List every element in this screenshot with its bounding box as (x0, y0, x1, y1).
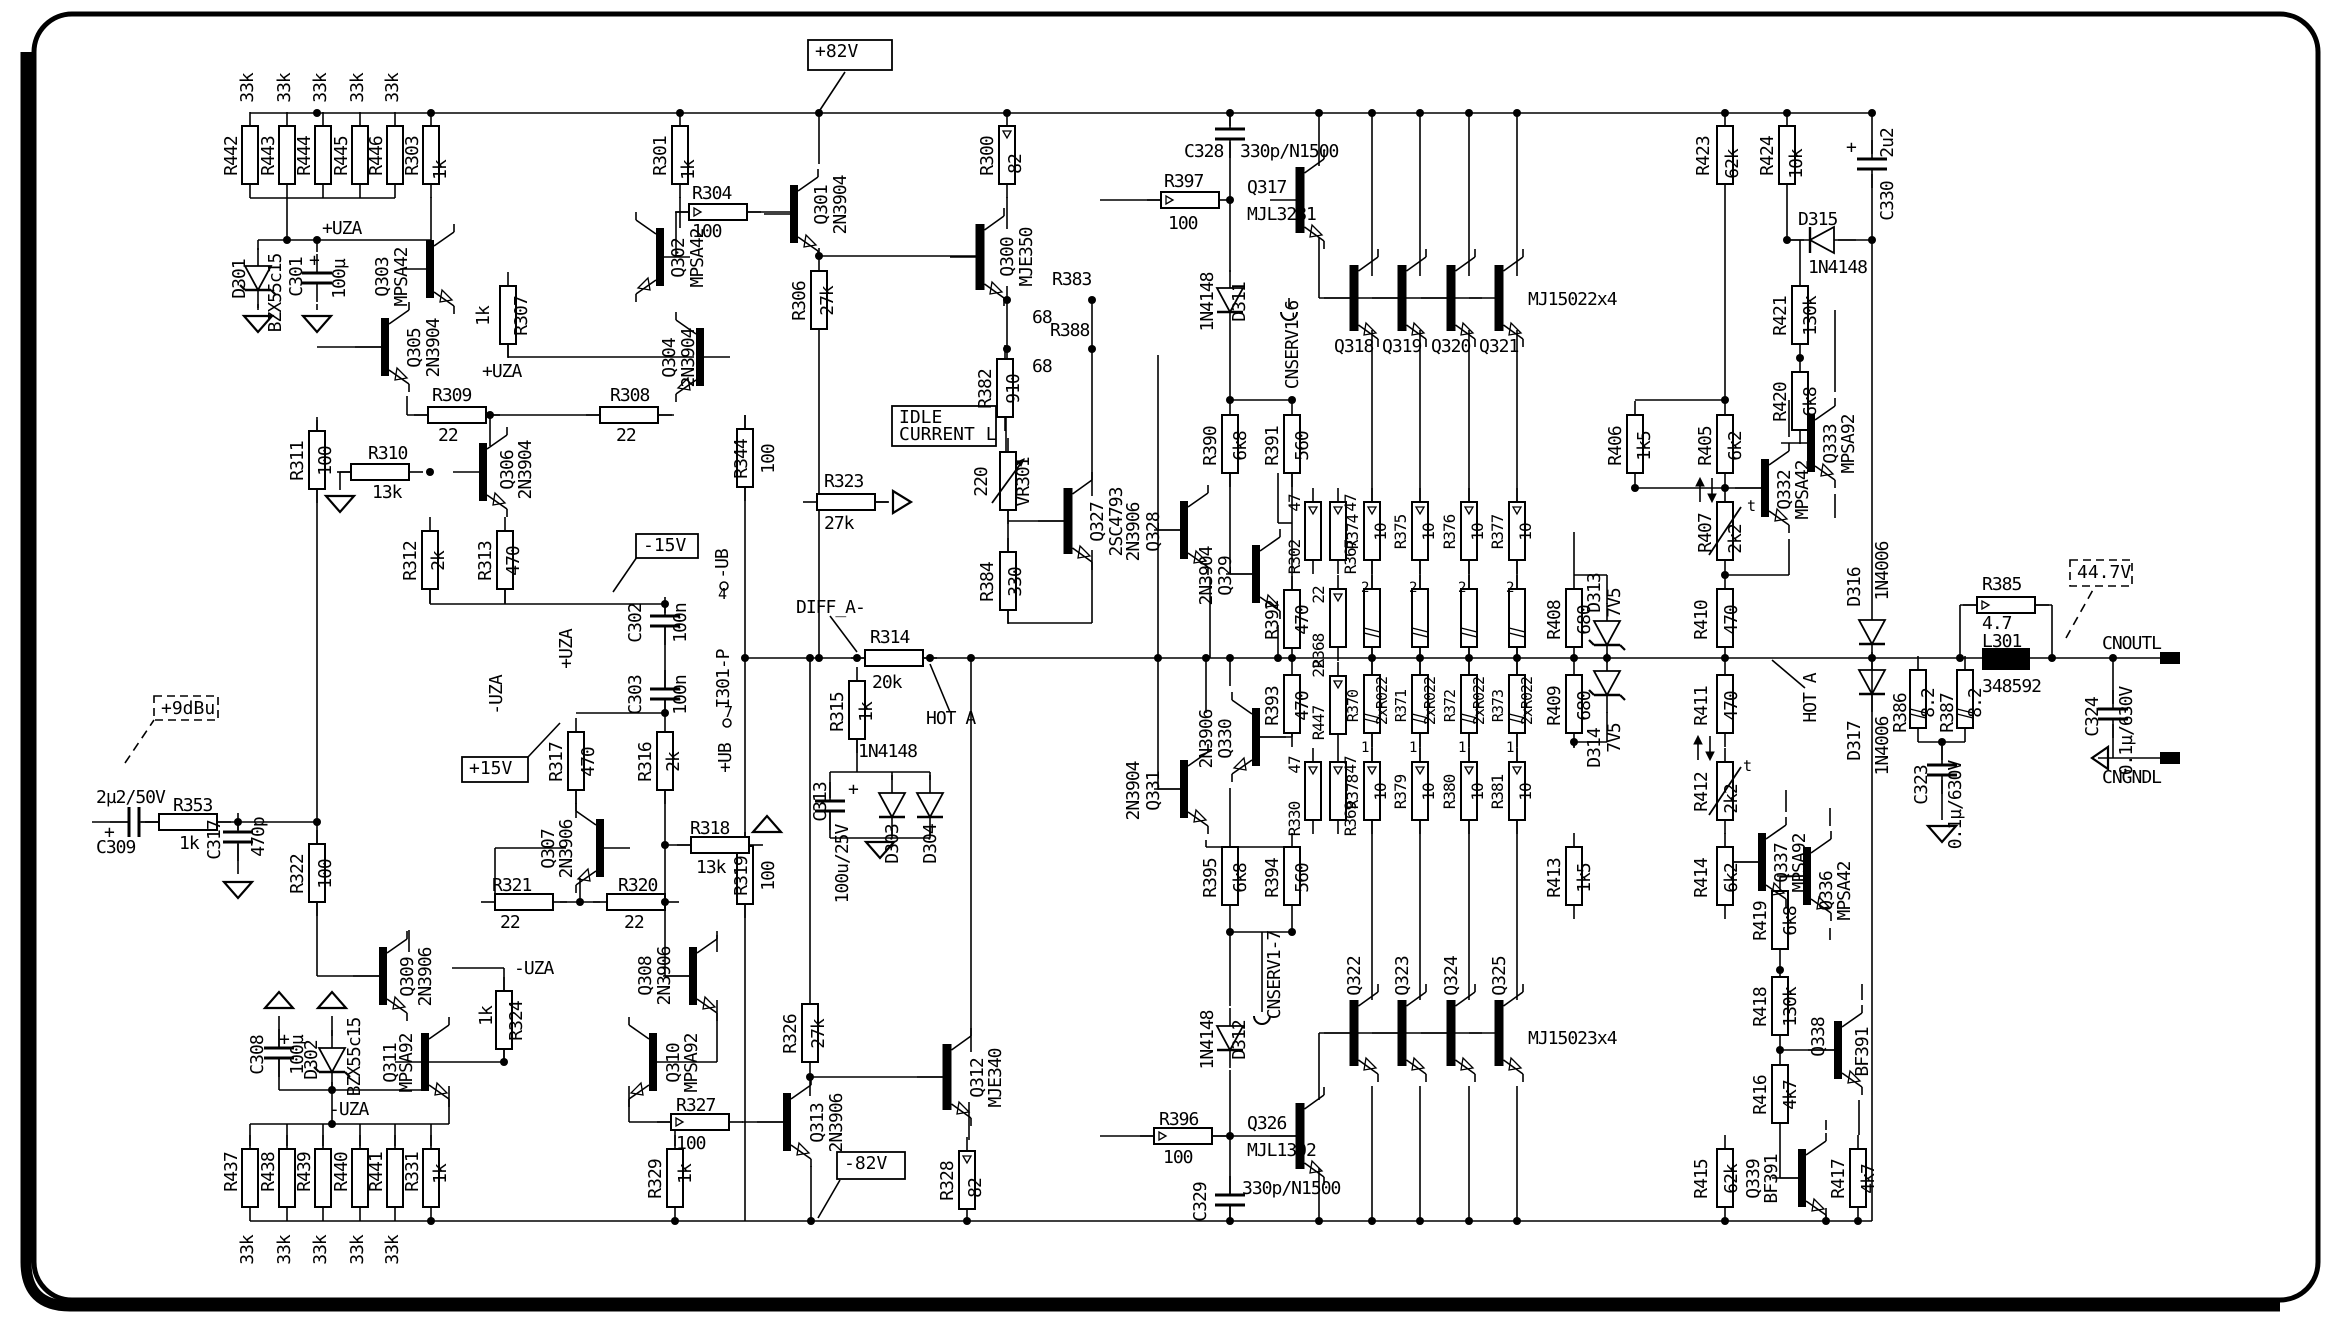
label-1k: 1k (473, 305, 494, 326)
label-mpsa92: MPSA92 (681, 1033, 702, 1092)
label-r374: R374 (1343, 514, 1362, 549)
label-22: 22 (500, 912, 520, 933)
label-100n: 100n (670, 603, 691, 643)
power-label--15V: -15V (636, 534, 698, 558)
label-r302: R302 (1285, 539, 1304, 574)
label-r445: R445 (331, 136, 352, 176)
label-2k: 2k (663, 751, 684, 772)
label-r344: R344 (731, 439, 752, 479)
label-r443: R443 (258, 136, 279, 176)
label-mpsa42: MPSA42 (1834, 861, 1855, 920)
label-100u25v: 100u/25V (832, 823, 853, 903)
label-33k: 33k (274, 1234, 295, 1265)
label-47: 47 (1341, 756, 1360, 774)
label-r300: R300 (977, 136, 998, 176)
label-1k: 1k (430, 159, 451, 180)
label-470: 470 (503, 546, 524, 576)
rvw-40 (1305, 748, 1321, 834)
label-r394: R394 (1262, 858, 1283, 898)
label-r388: R388 (1050, 320, 1090, 341)
svg-text:+9dBu: +9dBu (161, 698, 215, 719)
label-1k5: 1k5 (1634, 431, 1655, 461)
label-100n: 100n (670, 675, 691, 715)
label-2xr022: 2xR022 (1470, 677, 1488, 725)
label-r306: R306 (789, 281, 810, 321)
label-r303: R303 (402, 136, 423, 176)
rv-6 (672, 112, 688, 198)
label-r326: R326 (780, 1014, 801, 1054)
label-130k: 130k (1780, 986, 1801, 1027)
label-q303: Q303 (372, 257, 393, 297)
label-2: 2 (1409, 580, 1417, 596)
label-d313: D313 (1584, 573, 1605, 613)
label-r437: R437 (221, 1152, 242, 1192)
label-560: 560 (1292, 431, 1313, 461)
caph-106 (110, 807, 158, 837)
label-10: 10 (1419, 783, 1438, 801)
label-1: 1 (1361, 740, 1369, 756)
label-62k: 62k (1722, 148, 1743, 179)
label-r313: R313 (475, 541, 496, 581)
power-label--82V: -82V (837, 1152, 905, 1179)
label-2n3906: 2N3906 (654, 946, 675, 1005)
label-1n4148: 1N4148 (1808, 257, 1867, 278)
rhw-83 (675, 204, 761, 220)
label-470: 470 (1292, 605, 1313, 635)
label-d303: D303 (882, 824, 903, 864)
label-mje350: MJE350 (1016, 227, 1037, 286)
label-68: 68 (1032, 356, 1052, 377)
rvw-38 (1330, 575, 1346, 661)
label-r322: R322 (287, 854, 308, 894)
label-r380: R380 (1440, 774, 1459, 809)
label-mjl1302: MJL1302 (1247, 1140, 1316, 1161)
label-q325: Q325 (1489, 956, 1510, 996)
label-1k: 1k (476, 1005, 497, 1026)
label-r324: R324 (506, 1001, 527, 1041)
label-+ub: +UB (715, 743, 736, 773)
label-r321: R321 (492, 875, 532, 896)
label-r412: R412 (1691, 772, 1712, 812)
label-i301-p: I301-P (713, 648, 734, 708)
label-d302: D302 (301, 1040, 322, 1080)
label-d304: D304 (920, 824, 941, 864)
label-2n3904: 2N3904 (1196, 546, 1217, 605)
label-10: 10 (1371, 523, 1390, 541)
label-1k: 1k (430, 1163, 451, 1184)
garr-162 (893, 491, 911, 513)
gnd-156 (224, 882, 252, 898)
label-100: 100 (1163, 1147, 1193, 1168)
arr2-168 (1696, 478, 1716, 502)
label-mpsa42: MPSA42 (391, 247, 412, 306)
rv-1 (279, 112, 295, 198)
label-mpsa42: MPSA42 (1792, 460, 1813, 519)
label-6k2: 6k2 (1721, 863, 1742, 893)
label-2xr022: 2xR022 (1518, 677, 1536, 725)
label-r420: R420 (1770, 382, 1791, 422)
label-r317: R317 (546, 742, 567, 782)
transistor-132 (1038, 472, 1092, 570)
label-c324: C324 (2082, 697, 2103, 737)
rhw-89 (657, 1114, 743, 1130)
label-22: 22 (616, 425, 636, 446)
label-470: 470 (578, 747, 599, 777)
label-910: 910 (1003, 374, 1024, 404)
label-c328: C328 (1184, 141, 1224, 162)
label-r373: R373 (1489, 690, 1507, 722)
label-6k8: 6k8 (1800, 387, 1821, 417)
label-r409: R409 (1544, 686, 1565, 726)
label-r323: R323 (824, 471, 864, 492)
label-6k2: 6k2 (1725, 431, 1746, 461)
label-10: 10 (1419, 523, 1438, 541)
rv-4 (387, 112, 403, 198)
label-q324: Q324 (1441, 956, 1462, 996)
label-q327: Q327 (1087, 502, 1108, 542)
label-q323: Q323 (1392, 956, 1413, 996)
label-r318: R318 (690, 818, 730, 839)
label-+uza: +UZA (556, 628, 577, 669)
label-bzx55c15: BZX55c15 (265, 253, 286, 332)
label-r376: R376 (1440, 514, 1459, 549)
label-q331: Q331 (1143, 771, 1164, 811)
label-348592: 348592 (1982, 676, 2041, 697)
label-hota: HOT A (926, 708, 976, 729)
rv-5 (423, 112, 439, 198)
label-27k: 27k (808, 1018, 829, 1049)
label-r447: R447 (1309, 705, 1328, 740)
label-+: + (309, 250, 320, 271)
rv-21 (315, 1135, 331, 1221)
label-82: 8.2 (1918, 688, 1939, 718)
dioh-117 (1788, 227, 1856, 253)
label-r309: R309 (432, 385, 472, 406)
label-1k: 1k (856, 701, 877, 722)
label-r379: R379 (1391, 774, 1410, 809)
power-label-IDLE: IDLECURRENT L (892, 406, 997, 446)
label-10k: 10k (1786, 148, 1807, 179)
label-82: 82 (965, 1178, 986, 1198)
label-68: 68 (1032, 307, 1052, 328)
label-bzx55c15: BZX55c15 (344, 1017, 365, 1096)
label-r371: R371 (1392, 689, 1410, 722)
label-r391: R391 (1262, 426, 1283, 466)
label-c302: C302 (625, 603, 646, 643)
transistor-131 (917, 1028, 971, 1126)
label-33k: 33k (347, 72, 368, 103)
label-33k: 33k (310, 1234, 331, 1265)
rvw-36 (1305, 488, 1321, 574)
label-47: 47 (1285, 494, 1304, 512)
power-label-+15V: +15V (462, 757, 528, 782)
rv-19 (242, 1135, 258, 1221)
text-layer: 33k33k33k33k33kR442R443R444R445R446R3031… (96, 72, 2162, 1265)
label-33k: 33k (274, 72, 295, 103)
label-r439: R439 (294, 1152, 315, 1192)
label-r446: R446 (366, 136, 387, 176)
label-r392: R392 (1262, 600, 1283, 640)
label-27k: 27k (824, 513, 855, 534)
label-100: 100 (315, 446, 336, 476)
label-7: 7 (724, 703, 732, 721)
label-330pn1500: 330p/N1500 (1242, 1178, 1341, 1199)
label-r315: R315 (827, 692, 848, 732)
pad-172 (2160, 752, 2180, 764)
label-680: 680 (1574, 691, 1595, 721)
label-cnserv1-7: CNSERV1-7 (1264, 931, 1285, 1020)
label-2k2: 2k2 (1725, 524, 1746, 554)
label-330: 330 (1005, 567, 1026, 597)
label-2k2: 2k2 (1721, 784, 1742, 814)
label-2n3904: 2N3904 (678, 328, 699, 387)
label-4k7: 4k7 (1780, 1080, 1801, 1110)
label-mpsa92: MPSA92 (1789, 833, 1810, 892)
label-r330: R330 (1285, 801, 1304, 836)
label-r408: R408 (1544, 600, 1565, 640)
label-q320: Q320 (1431, 336, 1471, 357)
dashed-label-+9dBu: +9dBu (154, 696, 218, 720)
label-2n3906: 2N3906 (1196, 709, 1217, 768)
label-22: 22 (1309, 660, 1328, 678)
label-r353: R353 (173, 795, 213, 816)
label-r308: R308 (610, 385, 650, 406)
svg-text:CURRENT L: CURRENT L (899, 424, 997, 445)
label-q313: Q313 (807, 1103, 828, 1143)
rh-84 (803, 494, 889, 510)
label-c323: C323 (1911, 765, 1932, 805)
label-6k8: 6k8 (1780, 906, 1801, 936)
pad-171 (2160, 652, 2180, 664)
label-r418: R418 (1750, 987, 1771, 1027)
label-27k: 27k (817, 285, 838, 316)
label-c317: C317 (204, 820, 225, 860)
label-r378: R378 (1343, 774, 1362, 809)
label-c301: C301 (286, 257, 307, 297)
rhw-92 (1140, 1128, 1226, 1144)
label-330pn1500: 330p/N1500 (1240, 141, 1339, 162)
label-c330: C330 (1877, 181, 1898, 221)
label-q308: Q308 (635, 956, 656, 996)
label-33k: 33k (347, 1234, 368, 1265)
label-47: 47 (1285, 756, 1304, 774)
label-hota: HOT A (1800, 672, 1821, 722)
label-4: 4 (718, 585, 727, 603)
label-13k: 13k (372, 482, 403, 503)
gup-159 (265, 992, 293, 1008)
label-2n3906: 2N3906 (826, 1093, 847, 1152)
label-r384: R384 (977, 562, 998, 602)
label-1n4148: 1N4148 (1197, 1010, 1218, 1069)
label-mjl3281: MJL3281 (1247, 204, 1316, 225)
label-33k: 33k (382, 72, 403, 103)
label-2k: 2k (428, 550, 449, 571)
label-mj15022x4: MJ15022x4 (1528, 289, 1617, 310)
label-62k: 62k (1721, 1163, 1742, 1194)
label-100: 100 (315, 859, 336, 889)
label-r410: R410 (1691, 600, 1712, 640)
rv-23 (387, 1135, 403, 1221)
label-2: 2 (1361, 580, 1369, 596)
label-2n3906: 2N3906 (415, 947, 436, 1006)
label-mje340: MJE340 (985, 1048, 1006, 1107)
label-2: 2 (1458, 580, 1466, 596)
label-r307: R307 (511, 296, 532, 336)
label-2xr022: 2xR022 (1421, 677, 1439, 725)
label-r383: R383 (1052, 269, 1092, 290)
label-82: 82 (1005, 154, 1026, 174)
label-q305: Q305 (404, 328, 425, 368)
label-10: 10 (1516, 523, 1535, 541)
label-6k8: 6k8 (1230, 863, 1251, 893)
label-r328: R328 (937, 1161, 958, 1201)
label-01630v: 0.1µ/630V (2116, 686, 2137, 776)
label-q318: Q318 (1334, 336, 1374, 357)
label-+uza: +UZA (322, 218, 363, 239)
label-r372: R372 (1441, 690, 1459, 722)
label-q300: Q300 (997, 237, 1018, 277)
label-r329: R329 (645, 1159, 666, 1199)
label--uza: -UZA (514, 958, 555, 979)
label-1: 1 (1458, 740, 1466, 756)
label-2n3904: 2N3904 (515, 440, 536, 499)
rh-82 (337, 464, 423, 480)
label-r441: R441 (366, 1152, 387, 1192)
label-100: 100 (676, 1133, 706, 1154)
label-r438: R438 (258, 1152, 279, 1192)
label-7v5: 7V5 (1604, 588, 1625, 618)
svg-text:+15V: +15V (469, 758, 513, 779)
label-mpsa92: MPSA92 (396, 1033, 417, 1092)
label-01630v: 0.1µ/630V (1945, 760, 1966, 850)
label-100: 100 (758, 444, 779, 474)
svg-text:-82V: -82V (844, 1153, 888, 1174)
transistor-130 (757, 1077, 811, 1167)
label-13k: 13k (696, 857, 727, 878)
label-q319: Q319 (1382, 336, 1422, 357)
label-r314: R314 (870, 627, 910, 648)
label-33k: 33k (382, 1234, 403, 1265)
label-r421: R421 (1770, 296, 1791, 336)
label-r395: R395 (1200, 858, 1221, 898)
transistor-119 (355, 302, 409, 392)
label-22: 22 (624, 912, 644, 933)
label-d315: D315 (1798, 209, 1838, 230)
label-2u2: 2u2 (1877, 128, 1898, 158)
label-r331: R331 (402, 1152, 423, 1192)
label-r385: R385 (1982, 574, 2022, 595)
label-vr301: VR301 (1013, 457, 1034, 506)
label-1k5: 1k5 (1574, 863, 1595, 893)
label-22: 22 (438, 425, 458, 446)
transistor-138 (1270, 1087, 1324, 1185)
label-470: 470 (1721, 691, 1742, 721)
schematic-sheet: +82V-15V+15V-82VIDLECURRENT L+9dBu44.7V3… (0, 0, 2333, 1329)
label-mpsa92: MPSA92 (1838, 414, 1859, 473)
label-r414: R414 (1691, 858, 1712, 898)
label-2: 2 (1506, 580, 1514, 596)
label-10: 10 (1468, 523, 1487, 541)
gup-160 (318, 992, 346, 1008)
transistor-122 (764, 169, 818, 259)
transistor-123 (950, 208, 1004, 306)
label-1n4148: 1N4148 (858, 741, 917, 762)
rhw-91 (1147, 192, 1233, 208)
label-100: 100 (758, 861, 779, 891)
label-1n4006: 1N4006 (1872, 541, 1893, 600)
power-label-+82V: +82V (808, 40, 892, 70)
rh-90 (851, 650, 937, 666)
label-d317: D317 (1844, 721, 1865, 761)
label-+: + (848, 779, 859, 800)
label-r310: R310 (368, 443, 408, 464)
label-mpsa42: MPSA42 (687, 228, 708, 287)
label-mj15023x4: MJ15023x4 (1528, 1028, 1617, 1049)
gnd-155 (326, 496, 354, 512)
label-1k: 1k (675, 1163, 696, 1184)
label-r390: R390 (1200, 426, 1221, 466)
label-q329: Q329 (1215, 556, 1236, 596)
label-r423: R423 (1693, 136, 1714, 176)
label-q328: Q328 (1143, 512, 1164, 552)
label-10: 10 (1468, 783, 1487, 801)
label-diffa-: DIFF_A- (796, 597, 865, 618)
label-bf391: BF391 (1852, 1027, 1873, 1076)
label-r407: R407 (1695, 513, 1716, 553)
label-d312: D312 (1229, 1020, 1250, 1060)
label-10: 10 (1516, 783, 1535, 801)
label--uza: -UZA (486, 674, 507, 715)
label-560: 560 (1292, 863, 1313, 893)
label-2xr022: 2xR022 (1373, 677, 1391, 725)
label-r397: R397 (1164, 171, 1204, 192)
schematic-canvas: +82V-15V+15V-82VIDLECURRENT L+9dBu44.7V3… (0, 0, 2333, 1329)
label-+: + (1846, 137, 1857, 158)
label-r301: R301 (650, 136, 671, 176)
label-q326: Q326 (1247, 1113, 1287, 1134)
label-r415: R415 (1691, 1159, 1712, 1199)
label-r375: R375 (1391, 514, 1410, 549)
label-c329: C329 (1190, 1182, 1211, 1222)
svg-text:-15V: -15V (643, 535, 687, 556)
label-d311: D311 (1229, 282, 1250, 322)
label-+uza: +UZA (482, 361, 523, 382)
label-r424: R424 (1757, 136, 1778, 176)
label-4k7: 4k7 (1858, 1164, 1879, 1194)
label-r393: R393 (1262, 686, 1283, 726)
label-1: 1 (1506, 740, 1514, 756)
label--ub: -UB (712, 549, 733, 579)
label-r440: R440 (331, 1152, 352, 1192)
rh-87 (481, 894, 567, 910)
label-130k: 130k (1800, 295, 1821, 336)
label-r417: R417 (1828, 1159, 1849, 1199)
label-r386: R386 (1890, 693, 1911, 733)
label-q301: Q301 (811, 185, 832, 225)
rv-2 (315, 112, 331, 198)
label-1: 1 (1409, 740, 1417, 756)
label-1n4148: 1N4148 (1197, 272, 1218, 331)
label-c313: C313 (810, 782, 831, 822)
rh-81 (586, 407, 672, 423)
label-r411: R411 (1691, 686, 1712, 726)
label-33k: 33k (310, 72, 331, 103)
label-cnserv1-6: CNSERV1-6 (1282, 301, 1303, 390)
label-q317: Q317 (1247, 177, 1287, 198)
dashed-label-44.7V: 44.7V (2070, 560, 2132, 586)
label-d301: D301 (229, 259, 250, 299)
label-33k: 33k (237, 1234, 258, 1265)
